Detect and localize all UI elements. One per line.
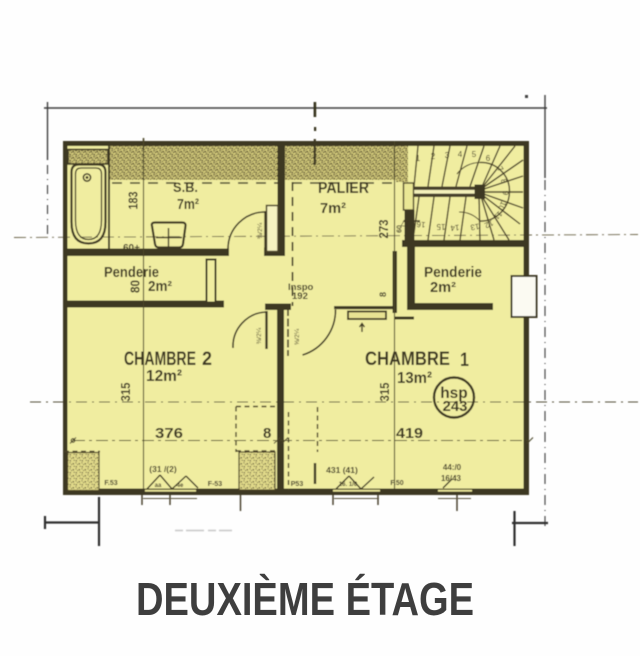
svg-text:7m²: 7m² [177, 196, 199, 213]
svg-text:16/43: 16/43 [441, 474, 462, 483]
svg-text:419: 419 [396, 425, 423, 442]
svg-text:12m²: 12m² [146, 368, 182, 385]
svg-text:4: 4 [458, 150, 463, 159]
svg-text:2: 2 [202, 349, 212, 370]
svg-text:15: 15 [436, 222, 445, 231]
svg-text:273: 273 [377, 219, 391, 238]
svg-text:44:/0: 44:/0 [443, 463, 462, 472]
svg-text:1: 1 [416, 154, 421, 163]
svg-text:(31 /(2): (31 /(2) [149, 464, 177, 474]
svg-text:431 (41): 431 (41) [326, 465, 358, 475]
svg-text:4e: 4e [177, 483, 184, 489]
svg-text:P53: P53 [291, 481, 304, 488]
svg-text:CHAMBRE: CHAMBRE [124, 349, 196, 370]
svg-text:60+: 60+ [123, 243, 140, 254]
svg-text:DEUXIÈME ÉTAGE: DEUXIÈME ÉTAGE [136, 573, 474, 625]
svg-text:243: 243 [442, 398, 467, 415]
svg-text:7m²: 7m² [320, 200, 346, 217]
svg-text:F-53: F-53 [208, 481, 223, 488]
svg-text:60: 60 [397, 225, 404, 233]
svg-text:14: 14 [450, 223, 460, 233]
svg-text:192: 192 [292, 291, 308, 302]
svg-text:2m²: 2m² [430, 280, 456, 296]
svg-text:16. 1/0: 16. 1/0 [339, 482, 358, 488]
svg-text:F.50: F.50 [390, 480, 403, 487]
svg-text:2m²: 2m² [148, 279, 172, 295]
svg-text:315: 315 [378, 382, 392, 401]
svg-text:⅜/2¼: ⅜/2¼ [256, 327, 263, 344]
svg-text:aa: aa [155, 483, 162, 489]
svg-text:5: 5 [472, 150, 477, 159]
svg-text:2: 2 [431, 152, 436, 161]
svg-text:80: 80 [129, 280, 143, 293]
svg-text:Penderie: Penderie [424, 265, 482, 281]
svg-text:S.B.: S.B. [173, 180, 198, 195]
svg-text:16: 16 [416, 219, 426, 229]
svg-text:⅜/2¼: ⅜/2¼ [257, 222, 264, 239]
svg-text:F.53: F.53 [104, 480, 117, 487]
svg-text:315: 315 [119, 382, 133, 401]
svg-text:8: 8 [263, 425, 271, 442]
svg-text:PALIER: PALIER [318, 180, 369, 197]
svg-text:8: 8 [378, 292, 388, 297]
svg-text:⅝/2¼: ⅝/2¼ [294, 328, 301, 345]
svg-text:6: 6 [486, 154, 491, 163]
svg-text:CHAMBRE: CHAMBRE [365, 349, 450, 370]
svg-text:1: 1 [460, 350, 469, 371]
svg-text:13m²: 13m² [397, 370, 432, 387]
svg-text:183: 183 [127, 191, 141, 209]
svg-text:3: 3 [445, 151, 450, 160]
svg-text:376: 376 [155, 425, 183, 442]
